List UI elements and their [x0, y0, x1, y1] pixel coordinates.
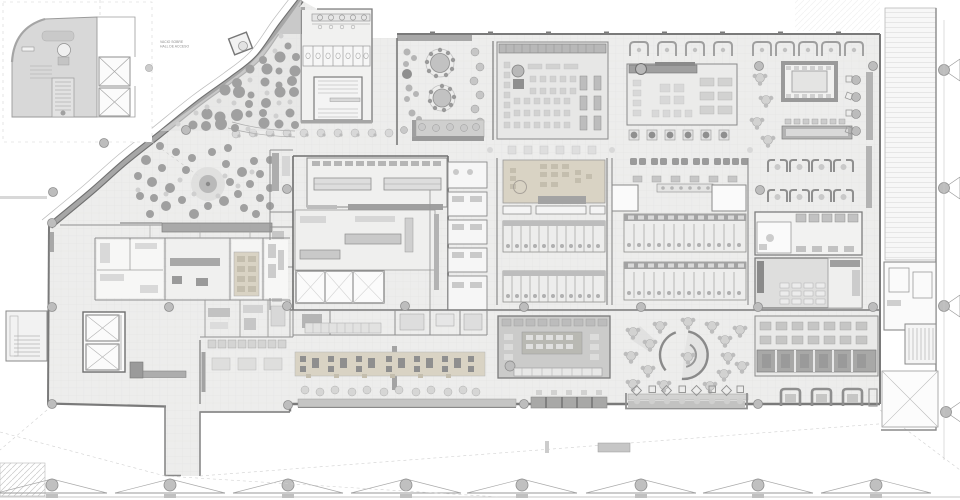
svg-text:VACIO SOBRE: VACIO SOBRE: [160, 40, 184, 44]
svg-text:HALL DE ACCESO: HALL DE ACCESO: [160, 45, 189, 49]
